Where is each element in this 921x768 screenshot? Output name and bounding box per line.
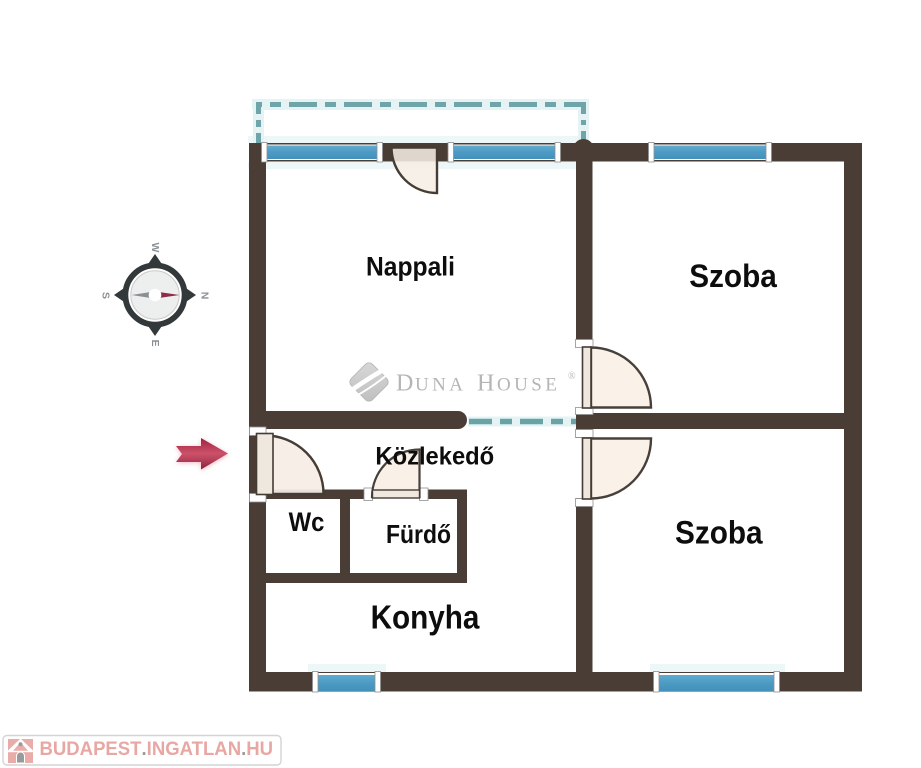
svg-text:E: E [149,339,161,346]
svg-text:Wc: Wc [289,508,325,537]
svg-text:Közlekedő: Közlekedő [375,443,494,471]
svg-text:OUSE: OUSE [497,375,560,396]
svg-text:Nappali: Nappali [366,253,455,282]
svg-text:BUDAPEST.INGATLAN.HU: BUDAPEST.INGATLAN.HU [40,739,274,761]
svg-text:Konyha: Konyha [371,599,480,636]
svg-text:N: N [199,292,211,300]
svg-text:Fürdő: Fürdő [386,521,451,549]
svg-text:UNA: UNA [415,375,466,396]
svg-text:D: D [396,371,413,397]
svg-text:W: W [149,243,161,253]
svg-text:Szoba: Szoba [675,515,763,551]
svg-text:Szoba: Szoba [689,258,777,294]
svg-text:H: H [477,371,494,397]
svg-text:®: ® [568,371,576,382]
svg-text:S: S [100,292,112,299]
